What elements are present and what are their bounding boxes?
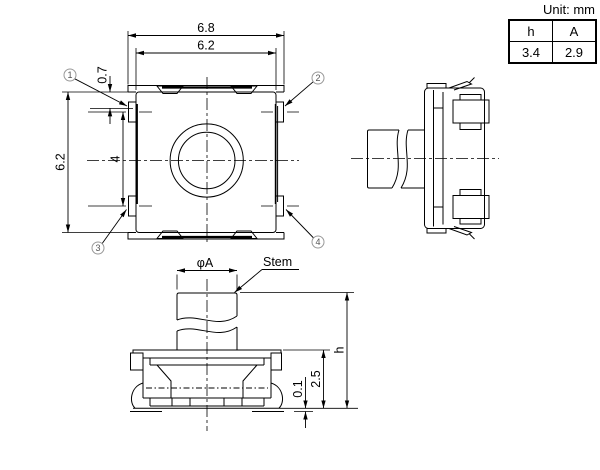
spec-value-h: 3.4 bbox=[509, 42, 553, 64]
dim-height-total: h bbox=[333, 346, 347, 353]
front-view: φA Stem h 2.5 0.1 bbox=[130, 255, 358, 431]
top-view: 6.8 6.2 6.2 4 0.7 1 2 3 bbox=[54, 21, 325, 254]
svg-text:2: 2 bbox=[315, 73, 320, 83]
cover-tab-top bbox=[427, 84, 446, 89]
drawing-sheet: 6.8 6.2 6.2 4 0.7 1 2 3 bbox=[0, 0, 600, 470]
dim-stem-diameter: φA bbox=[197, 256, 214, 270]
spec-table: h A 3.4 2.9 bbox=[508, 19, 597, 64]
spec-value-a: 2.9 bbox=[553, 42, 597, 64]
terminal-1 bbox=[129, 102, 137, 122]
dim-standoff: 0.1 bbox=[291, 380, 305, 397]
svg-text:3: 3 bbox=[95, 243, 100, 253]
callout-2: 2 bbox=[285, 72, 324, 106]
spec-header-a: A bbox=[553, 20, 597, 42]
cover-corner-tab-right bbox=[271, 353, 282, 370]
switch-body-outline bbox=[136, 92, 276, 233]
unit-note: Unit: mm bbox=[543, 2, 595, 17]
callout-3: 3 bbox=[92, 210, 127, 255]
side-stem bbox=[368, 130, 400, 188]
dim-body-height: 6.2 bbox=[54, 153, 68, 170]
stem-label: Stem bbox=[263, 255, 292, 269]
dim-body-height: 2.5 bbox=[309, 370, 323, 387]
dim-terminal-width: 0.7 bbox=[96, 66, 110, 83]
cover-corner-tab-left bbox=[131, 353, 144, 370]
cover-tab-bottom bbox=[427, 229, 446, 234]
terminal-3 bbox=[129, 196, 137, 216]
svg-text:1: 1 bbox=[67, 70, 72, 80]
technical-drawing: 6.8 6.2 6.2 4 0.7 1 2 3 bbox=[0, 0, 600, 470]
side-terminal-bottom bbox=[453, 196, 489, 219]
stem-break-line bbox=[401, 130, 408, 188]
stem-break-line bbox=[392, 130, 399, 188]
spec-header-h: h bbox=[509, 20, 553, 42]
dim-terminal-pitch: 4 bbox=[109, 155, 123, 162]
callout-4: 4 bbox=[286, 210, 324, 249]
dim-body-width: 6.2 bbox=[197, 39, 214, 53]
dim-flange-width: 6.8 bbox=[197, 21, 214, 35]
side-terminal-top bbox=[453, 100, 489, 123]
side-view bbox=[351, 78, 499, 240]
svg-text:4: 4 bbox=[315, 237, 320, 247]
